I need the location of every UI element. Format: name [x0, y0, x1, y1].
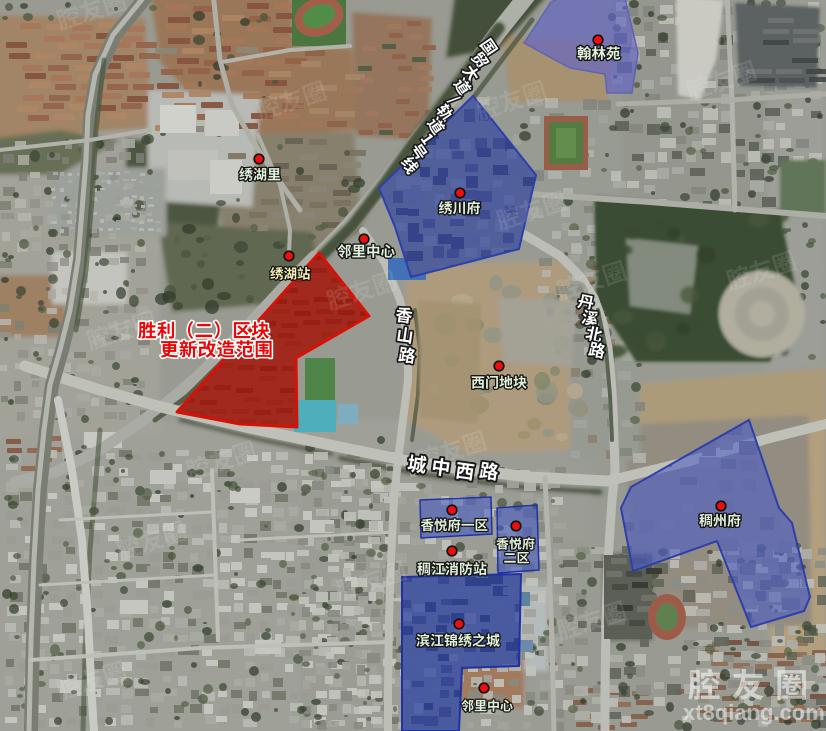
svg-text:xt8qiang.com: xt8qiang.com: [683, 700, 825, 725]
